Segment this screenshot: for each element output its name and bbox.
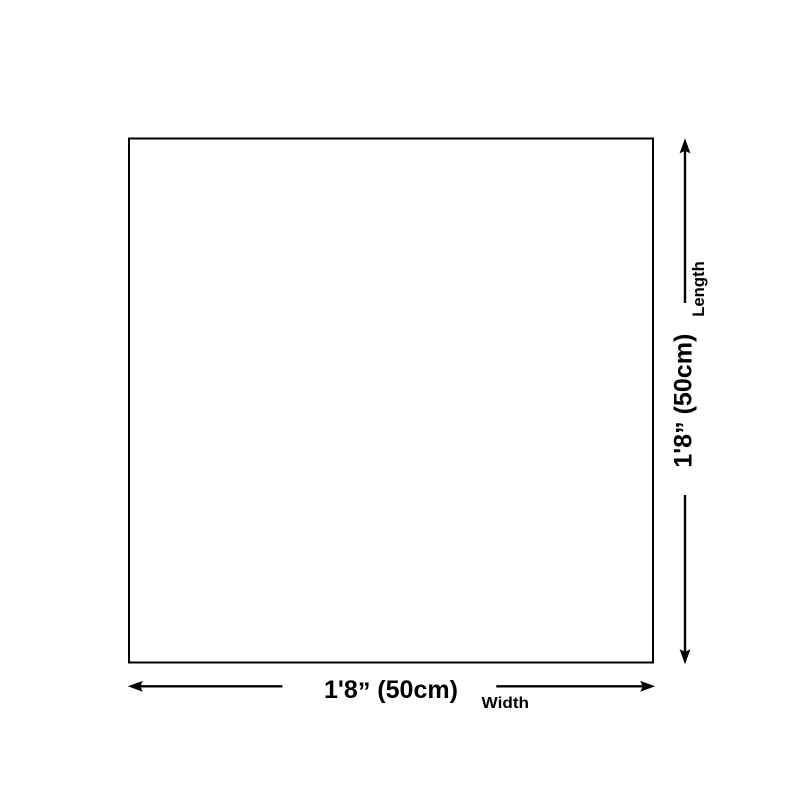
svg-text:Length: Length (689, 261, 708, 317)
svg-text:1'8” (50cm): 1'8” (50cm) (324, 676, 458, 706)
svg-text:1'8” (50cm): 1'8” (50cm) (669, 334, 699, 468)
svg-text:Width: Width (482, 695, 530, 712)
